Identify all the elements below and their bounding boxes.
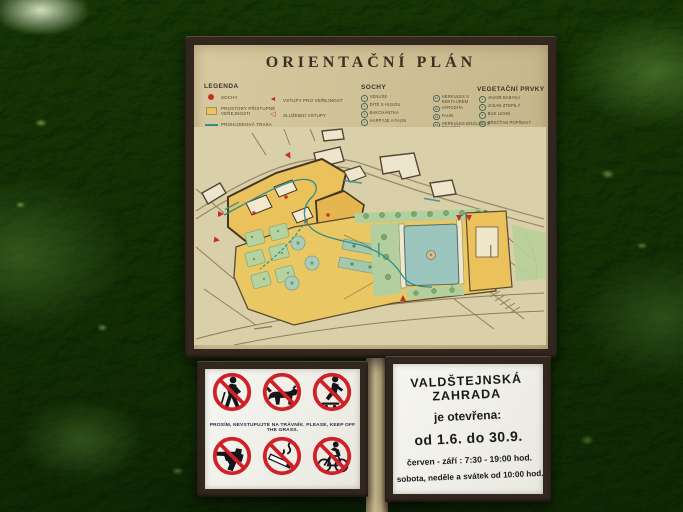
legend-symbol-icon: [204, 107, 218, 115]
legend-item: Služební vstupy: [266, 112, 356, 118]
weekday-hours-line: červen - září : 7:30 - 19:00 hod.: [394, 452, 543, 468]
statue-name: Bakchántka: [370, 111, 399, 116]
legend-symbol-icon: [204, 94, 218, 100]
statue-list-item: 2 Dítě s husou: [361, 103, 431, 110]
garden-name: VALDŠTEJNSKÁ ZAHRADA: [393, 371, 542, 405]
garden-map: [194, 127, 546, 345]
vegetation-number-badge: 2: [479, 104, 486, 111]
statue-number-badge: 13: [433, 114, 440, 121]
legend-heading: LEGENDA: [204, 83, 239, 90]
is-open-line: je otevřena:: [393, 406, 543, 426]
statue-name: Faun: [442, 114, 454, 119]
legend-symbol-icon: [266, 97, 280, 103]
no-dogs-icon: [261, 371, 303, 413]
vegetation-heading: VEGETAČNÍ PRVKY: [477, 86, 545, 93]
season-dates-line: od 1.6. do 30.9.: [393, 427, 543, 449]
statue-number-badge: 2: [361, 103, 368, 110]
legend-item-label: Služební vstupy: [283, 113, 326, 118]
statue-name: Dítě s husou: [370, 103, 401, 108]
keep-off-grass-caption: PROSÍM, NEVSTUPUJTE NA TRÁVNÍK. PLEASE, …: [205, 423, 360, 433]
statue-number-badge: 4: [361, 119, 368, 126]
no-cycling-icon: [311, 435, 353, 477]
pond: [399, 220, 464, 288]
hours-sign-frame: VALDŠTEJNSKÁ ZAHRADA je otevřena: od 1.6…: [385, 356, 551, 502]
no-walking-on-grass-icon: [211, 371, 253, 413]
no-smoking-icon: [261, 435, 303, 477]
statue-name: Harpyje a faun: [370, 119, 406, 124]
statue-number-badge: 3: [361, 111, 368, 118]
main-board-frame: ORIENTAČNÍ PLÁN LEGENDA Sochy Prostory p…: [185, 36, 557, 358]
vegetation-number-badge: 3: [479, 112, 486, 119]
statue-name: Afrodita: [442, 106, 464, 111]
vegetation-name: Javor babyka: [488, 96, 521, 101]
board-title: ORIENTAČNÍ PLÁN: [194, 54, 548, 72]
hours-sign: VALDŠTEJNSKÁ ZAHRADA je otevřena: od 1.6…: [393, 364, 543, 494]
statue-number-badge: 11: [433, 95, 440, 102]
vegetation-number-badge: 1: [479, 96, 486, 103]
vegetation-name: Břečťan popínavý: [488, 121, 532, 126]
legend-symbol-icon: [266, 112, 280, 118]
hours-text-block: VALDŠTEJNSKÁ ZAHRADA je otevřena: od 1.6…: [393, 367, 543, 484]
no-firearms-icon: [211, 435, 253, 477]
vegetation-list-item: 3 Buk lesní: [479, 112, 545, 119]
rules-sign-frame: PROSÍM, NEVSTUPUJTE NA TRÁVNÍK. PLEASE, …: [197, 361, 368, 497]
legend-item: Vstupy pro veřejnost: [266, 97, 356, 103]
statue-list-item: 3 Bakchántka: [361, 111, 431, 118]
vegetation-list-item: 2 Jasan ztepilý: [479, 104, 545, 111]
statue-list-item: 4 Harpyje a faun: [361, 119, 431, 126]
legend-symbol-icon: [204, 124, 218, 126]
legend-item-label: Vstupy pro veřejnost: [283, 98, 343, 103]
vegetation-name: Jasan ztepilý: [488, 104, 521, 109]
rules-sign: PROSÍM, NEVSTUPUJTE NA TRÁVNÍK. PLEASE, …: [205, 369, 360, 489]
photo-of-park-sign: ORIENTAČNÍ PLÁN LEGENDA Sochy Prostory p…: [0, 0, 683, 512]
orientation-board: ORIENTAČNÍ PLÁN LEGENDA Sochy Prostory p…: [194, 45, 548, 349]
statue-name: Venuše: [370, 95, 388, 100]
no-skating-icon: [311, 371, 353, 413]
vegetation-name: Buk lesní: [488, 112, 511, 117]
statue-list-item: 1 Venuše: [361, 95, 431, 102]
vegetation-list-item: 1 Javor babyka: [479, 96, 545, 103]
statue-number-badge: 1: [361, 95, 368, 102]
statue-number-badge: 12: [433, 106, 440, 113]
statues-heading: SOCHY: [361, 84, 386, 91]
legend-item-label: Sochy: [221, 95, 238, 100]
weekend-hours-line: sobota, neděle a svátek od 10:00 hod.: [395, 469, 543, 484]
